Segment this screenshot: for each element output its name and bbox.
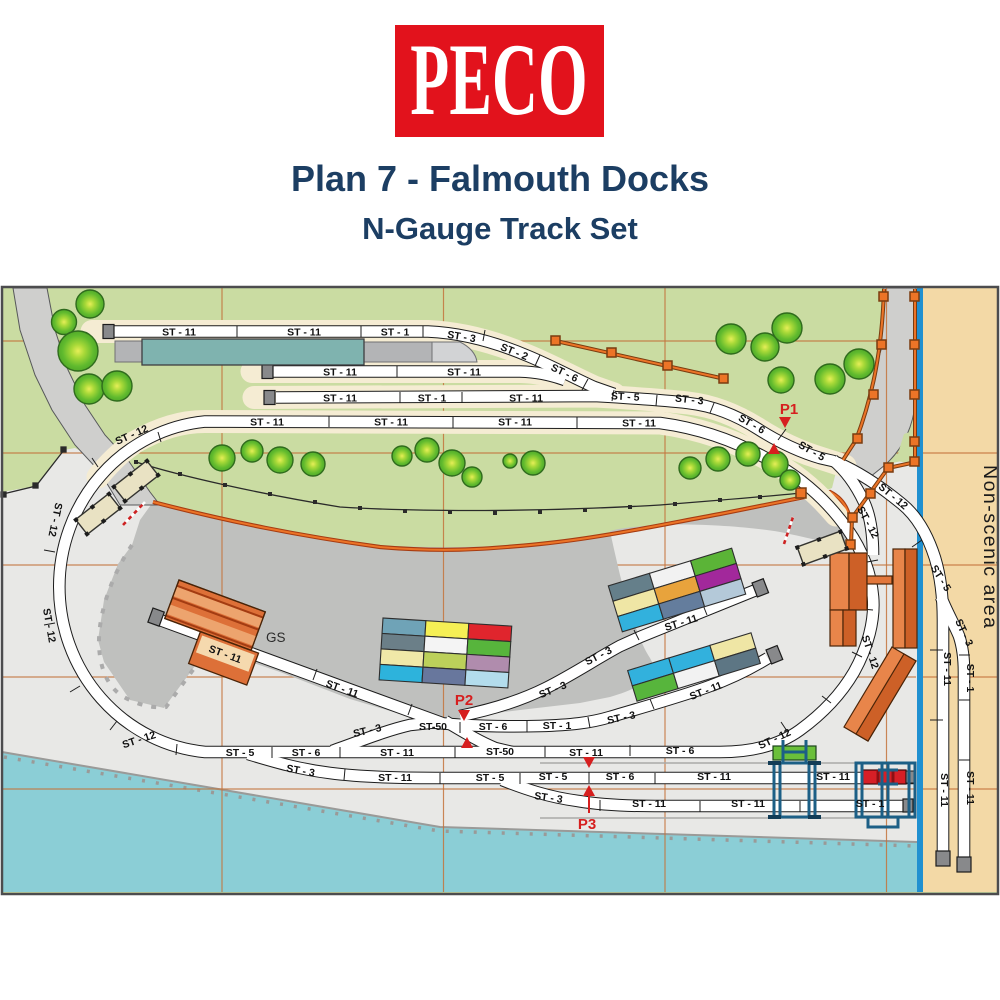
svg-text:ST - 1: ST - 1 bbox=[381, 327, 410, 339]
svg-text:ST - 11: ST - 11 bbox=[622, 418, 656, 430]
svg-text:ST - 11: ST - 11 bbox=[287, 327, 321, 339]
svg-text:ST - 1: ST - 1 bbox=[964, 664, 976, 693]
svg-text:ST-50: ST-50 bbox=[419, 721, 447, 733]
svg-text:ST - 6: ST - 6 bbox=[666, 745, 695, 757]
svg-text:ST - 11: ST - 11 bbox=[323, 393, 357, 405]
svg-text:P2: P2 bbox=[455, 692, 473, 709]
svg-text:ST - 11: ST - 11 bbox=[938, 773, 950, 807]
svg-text:ST - 11: ST - 11 bbox=[964, 771, 976, 805]
svg-text:GS: GS bbox=[266, 630, 286, 645]
svg-text:ST - 11: ST - 11 bbox=[162, 327, 196, 339]
svg-text:ST - 5: ST - 5 bbox=[226, 747, 255, 759]
svg-text:ST - 11: ST - 11 bbox=[816, 771, 850, 783]
svg-text:PECO: PECO bbox=[410, 23, 587, 137]
svg-text:ST - 11: ST - 11 bbox=[731, 798, 765, 810]
svg-text:ST - 11: ST - 11 bbox=[632, 798, 666, 810]
svg-text:ST - 5: ST - 5 bbox=[476, 772, 505, 784]
svg-text:ST - 1: ST - 1 bbox=[856, 798, 885, 810]
svg-text:ST - 11: ST - 11 bbox=[378, 772, 412, 784]
svg-text:ST - 11: ST - 11 bbox=[250, 417, 284, 429]
svg-text:ST - 11: ST - 11 bbox=[509, 393, 543, 405]
svg-text:N-Gauge Track Set: N-Gauge Track Set bbox=[362, 211, 638, 246]
svg-text:ST - 11: ST - 11 bbox=[323, 367, 357, 379]
svg-text:ST - 5: ST - 5 bbox=[611, 390, 640, 403]
svg-text:ST-50: ST-50 bbox=[486, 746, 514, 758]
svg-text:ST - 1: ST - 1 bbox=[418, 393, 447, 405]
svg-text:P3: P3 bbox=[578, 816, 596, 833]
svg-text:ST - 6: ST - 6 bbox=[479, 721, 508, 733]
svg-text:ST - 11: ST - 11 bbox=[697, 771, 731, 783]
svg-text:Plan 7 - Falmouth Docks: Plan 7 - Falmouth Docks bbox=[291, 158, 709, 199]
svg-text:ST - 11: ST - 11 bbox=[447, 367, 481, 379]
svg-text:ST - 11: ST - 11 bbox=[380, 747, 414, 759]
svg-text:ST - 6: ST - 6 bbox=[606, 771, 635, 783]
svg-text:ST - 6: ST - 6 bbox=[292, 747, 321, 759]
svg-text:ST - 11: ST - 11 bbox=[498, 417, 532, 429]
svg-text:ST - 1: ST - 1 bbox=[543, 720, 572, 732]
svg-text:P1: P1 bbox=[780, 401, 798, 418]
svg-text:ST - 11: ST - 11 bbox=[941, 652, 953, 686]
svg-text:ST - 11: ST - 11 bbox=[374, 417, 408, 429]
svg-text:ST - 5: ST - 5 bbox=[539, 771, 568, 783]
